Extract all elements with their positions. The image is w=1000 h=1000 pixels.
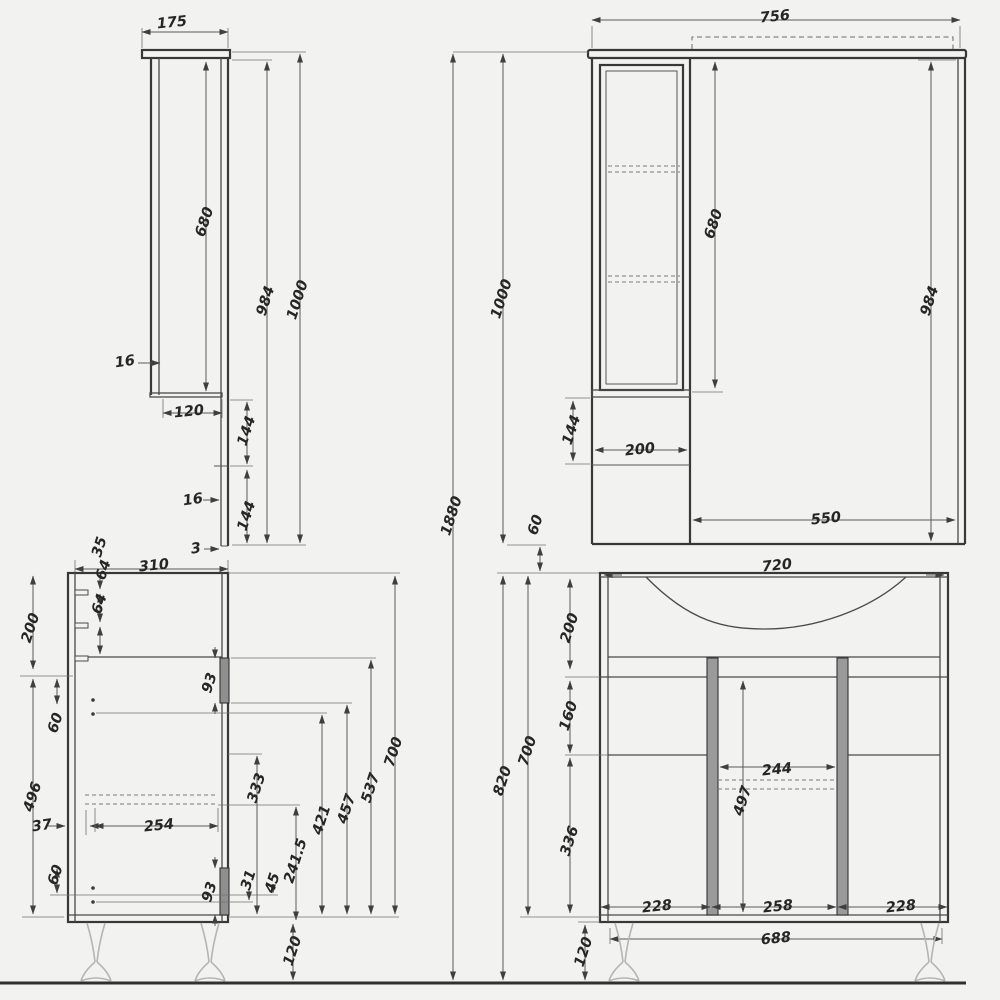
screw-dot [91, 886, 95, 890]
mirror-front-view [565, 20, 966, 544]
dim-label: 421 [309, 803, 334, 838]
dim-label: 756 [759, 7, 791, 26]
drawing-page: 1756809841000161201441614437566809841442… [0, 0, 1000, 1000]
pediment-dashed-outline [692, 37, 953, 49]
screw-dot [91, 712, 95, 716]
vanity-leg [195, 923, 225, 981]
door-divider-right [837, 658, 848, 915]
dim-label: 333 [245, 771, 270, 805]
dim-label: 144 [235, 414, 260, 448]
dim-label: 537 [359, 770, 384, 805]
dim-label: 93 [199, 880, 220, 904]
dim-label: 984 [254, 284, 279, 318]
sink-basin-curve [646, 577, 906, 629]
mirror-front-top-board [588, 50, 966, 58]
dim-label: 496 [20, 780, 45, 815]
cabinet-door [600, 65, 683, 390]
door-divider-left [707, 658, 718, 915]
mirror-side-bottom-shelf [150, 393, 222, 397]
dim-label: 700 [382, 735, 407, 769]
dim-label: 228 [641, 897, 673, 916]
shelf-pin-1 [75, 590, 88, 595]
mirror-side-top-board [142, 50, 230, 58]
dim-label: 120 [173, 402, 205, 421]
dim-label: 680 [702, 207, 727, 241]
dim-label: 120 [572, 935, 597, 969]
dim-label: 120 [281, 934, 306, 968]
dim-label: 550 [810, 509, 842, 528]
dim-label: 144 [235, 499, 260, 533]
dim-label: 820 [491, 764, 516, 798]
dim-label: 720 [761, 556, 793, 575]
vanity-side-box [68, 573, 228, 922]
dim-label: 16 [114, 353, 136, 372]
technical-drawing-canvas: 1756809841000161201441614437566809841442… [0, 0, 1000, 1000]
dim-label: 258 [762, 897, 794, 916]
dim-label: 175 [156, 13, 188, 32]
dimension-labels: 1756809841000161201441614437566809841442… [18, 7, 943, 971]
dim-label: 457 [334, 791, 359, 827]
dim-label: 45 [262, 871, 284, 896]
screw-dot [91, 698, 95, 702]
dim-label: 35 [89, 535, 110, 559]
dim-label: 200 [19, 611, 44, 645]
dim-label: 64 [89, 592, 110, 616]
dim-label: 16 [182, 491, 204, 510]
dim-label: 60 [525, 513, 546, 537]
vanity-leg [609, 923, 639, 981]
upper-handle-side [220, 658, 229, 703]
dim-label: 1880 [438, 494, 466, 537]
dim-label: 200 [558, 611, 583, 645]
dim-label: 200 [624, 440, 656, 459]
dim-label: 144 [560, 413, 585, 447]
mirror-side-view [138, 28, 306, 549]
dim-label: 3 [190, 540, 202, 557]
lower-handle-side [220, 868, 229, 915]
dim-label: 93 [199, 671, 220, 695]
shelf-pin-3 [75, 656, 88, 661]
dim-label: 336 [558, 824, 583, 858]
dim-label: 1000 [284, 278, 312, 321]
vanity-leg [915, 923, 945, 981]
dim-label: 984 [918, 284, 943, 318]
dim-label: 688 [760, 929, 792, 948]
dim-label: 60 [45, 711, 66, 735]
vanity-leg [81, 923, 111, 981]
dim-label: 700 [516, 734, 541, 768]
dim-label: 680 [193, 205, 218, 239]
vanity-front-box [600, 573, 948, 922]
dim-label: 160 [557, 699, 582, 733]
dim-label: 310 [138, 556, 170, 575]
dim-label: 228 [885, 897, 917, 916]
dim-label: 254 [143, 816, 175, 835]
dim-label: 37 [31, 817, 54, 836]
shelf-pin-2 [75, 623, 88, 628]
screw-dot [91, 900, 95, 904]
dim-label: 64 [93, 558, 114, 582]
dim-label: 1000 [488, 277, 516, 320]
vanity-side-view [20, 560, 400, 981]
dim-label: 241.5 [281, 837, 310, 886]
dim-label: 244 [761, 760, 793, 779]
dim-label: 60 [45, 863, 66, 887]
